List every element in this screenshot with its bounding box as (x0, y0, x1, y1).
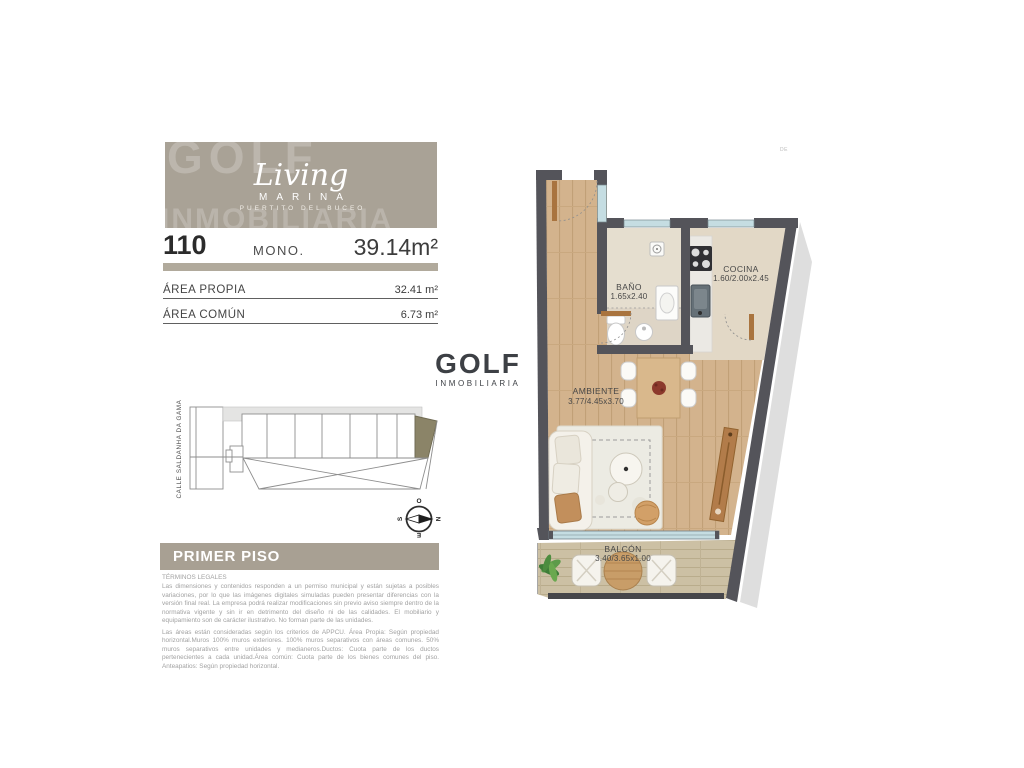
bidet-icon (636, 324, 653, 341)
street-label: CALLE SALDANHA DA GAMA (176, 399, 183, 498)
balcony-sliding-door (549, 531, 719, 539)
legal-paragraph-2: Las áreas están consideradas según los c… (162, 629, 439, 671)
area-propia-value: 32.41 m² (395, 284, 438, 296)
compass-north: N (434, 517, 441, 522)
balcony-dims: 3.40/3.65x1.00 (595, 554, 651, 563)
corridor-window (598, 185, 607, 222)
balcony-chair-right (647, 555, 676, 586)
floor-banner-label: PRIMER PISO (160, 543, 439, 570)
living-dims: 3.77/4.45x3.70 (568, 397, 624, 406)
project-logo: GOLF INMOBILIARIA Living MARINA PUERTITO… (165, 142, 437, 228)
building-keyplan: CALLE SALDANHA DA GAMA O N (160, 395, 450, 555)
compass-icon: O N S E (397, 498, 441, 538)
pouf (635, 501, 659, 525)
area-propia-row: ÁREA PROPIA 32.41 m² (163, 277, 438, 299)
compass-west: O (416, 498, 421, 505)
logo-center: Living MARINA PUERTITO DEL BUCEO (165, 142, 437, 228)
unit-type: MONO. (253, 243, 305, 258)
bathroom-label: BAÑO (616, 282, 642, 292)
project-tagline: PUERTITO DEL BUCEO (237, 205, 366, 212)
kitchen-window (708, 220, 754, 227)
area-comun-value: 6.73 m² (401, 309, 438, 321)
living-label: AMBIENTE (573, 386, 620, 396)
compass-south: S (397, 516, 404, 521)
balcony-rail (548, 593, 724, 599)
sink-icon (691, 285, 710, 317)
toilet-icon (607, 316, 625, 345)
kitchen-label: COCINA (723, 264, 758, 274)
side-table (609, 483, 628, 502)
kitchen-dims: 1.60/2.00x2.45 (713, 274, 769, 283)
legal-terms: TÉRMINOS LEGALES Las dimensiones y conte… (162, 574, 439, 674)
bathroom-window (624, 220, 670, 227)
building-outline (190, 407, 437, 489)
floor-banner: PRIMER PISO (160, 543, 439, 570)
highlighted-unit (415, 416, 437, 458)
legal-paragraph-1: Las dimensiones y contenidos responden a… (162, 583, 439, 625)
balcony-label: BALCÓN (604, 544, 641, 554)
agency-logo: GOLF INMOBILIARIA (426, 350, 530, 388)
bathroom-dims: 1.65x2.40 (611, 292, 648, 301)
area-propia-label: ÁREA PROPIA (163, 284, 246, 296)
compass-east: E (416, 531, 421, 538)
unit-info: 110 MONO. 39.14m² (163, 231, 438, 261)
floor-plan: BAÑO 1.65x2.40 COCINA 1.60/2.00x2.45 AMB… (525, 145, 825, 615)
agency-name: GOLF (426, 350, 530, 378)
agency-subtitle: INMOBILIARIA (426, 379, 530, 388)
area-comun-row: ÁREA COMÚN 6.73 m² (163, 302, 438, 324)
area-comun-label: ÁREA COMÚN (163, 309, 245, 321)
unit-number: 110 (163, 230, 207, 261)
brochure-page: DE GOLF INMOBILIARIA Living MARINA PUERT… (0, 0, 1024, 768)
legal-title: TÉRMINOS LEGALES (162, 574, 439, 582)
kitchen-fixtures (689, 236, 712, 352)
project-subname: MARINA (250, 192, 352, 203)
unit-total-area: 39.14m² (354, 234, 438, 261)
stove-icon (689, 246, 712, 271)
divider-bar (163, 263, 438, 271)
project-name: Living (254, 161, 349, 191)
sofa (549, 431, 592, 530)
